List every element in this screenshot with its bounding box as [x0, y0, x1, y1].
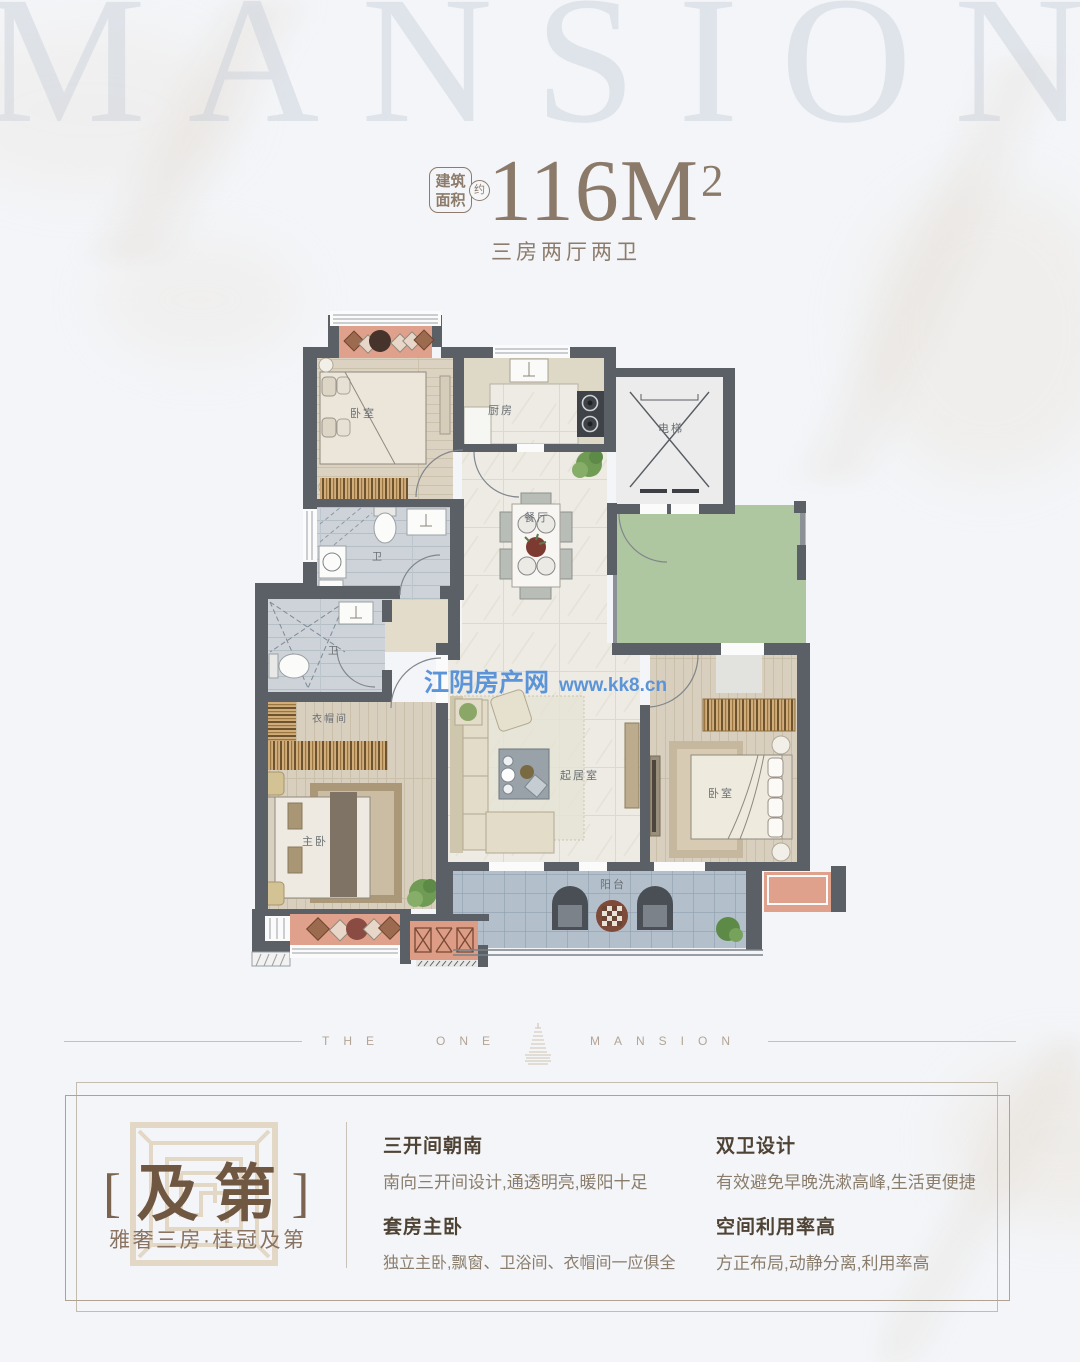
- svg-text:卧室: 卧室: [350, 406, 376, 420]
- svg-text:餐厅: 餐厅: [524, 510, 550, 524]
- svg-text:衣帽间: 衣帽间: [312, 712, 348, 725]
- svg-text:主卧: 主卧: [302, 835, 328, 848]
- svg-text:卧室: 卧室: [708, 786, 734, 800]
- svg-text:阳台: 阳台: [600, 877, 626, 891]
- svg-text:厨房: 厨房: [488, 404, 514, 417]
- svg-text:卫: 卫: [328, 646, 340, 657]
- svg-text:卫: 卫: [372, 552, 384, 563]
- svg-text:电梯: 电梯: [658, 422, 684, 435]
- svg-text:起居室: 起居室: [560, 768, 599, 782]
